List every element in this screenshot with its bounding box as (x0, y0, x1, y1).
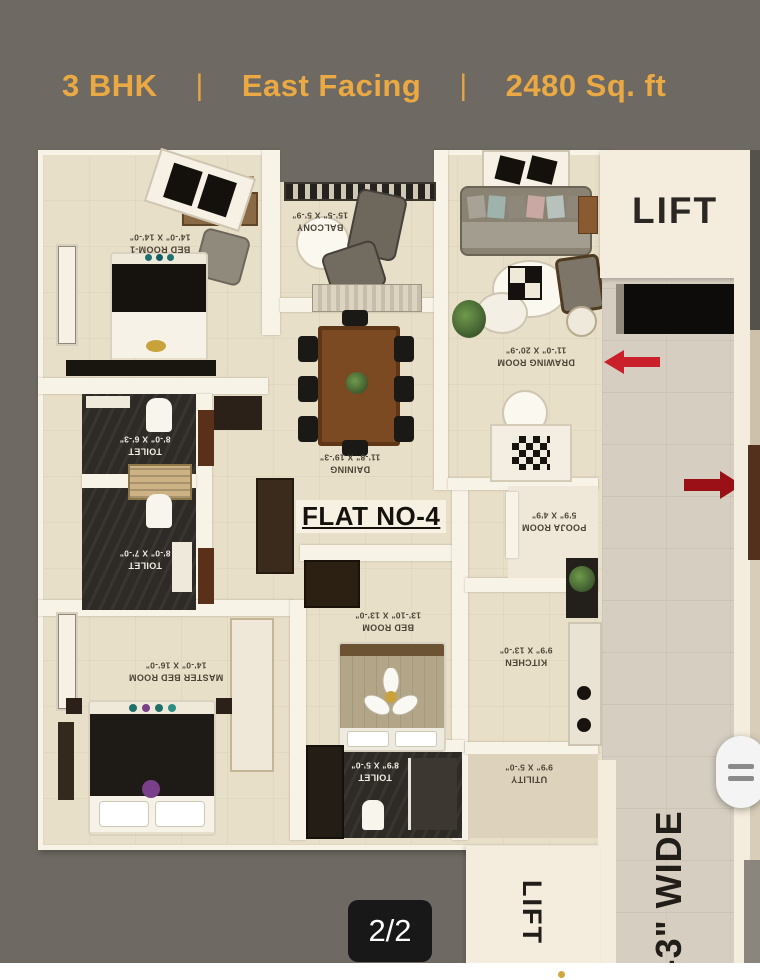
edge-door (748, 445, 760, 560)
room-label-bed1: BED ROOM-1 14'-0" X 14'-0" (100, 232, 220, 255)
plant (452, 300, 486, 338)
window (56, 612, 78, 711)
dresser (58, 722, 74, 800)
dining-chair (298, 336, 318, 362)
arrow-left-icon (604, 348, 660, 376)
tray (508, 266, 542, 300)
foyer-desk (214, 396, 262, 430)
wc (146, 494, 172, 528)
wc (146, 398, 172, 432)
bottom-bar (0, 963, 760, 980)
room-label-daining: DAINING 11'-8" X 19'-3" (290, 452, 410, 475)
corridor-width-label: 6'-3" WIDE (648, 772, 690, 980)
nightstand (66, 698, 82, 714)
wardrobe (256, 478, 294, 574)
lift-label-top: LIFT (632, 190, 718, 232)
wardrobe (304, 560, 360, 608)
wall (434, 150, 448, 490)
flat-number-label: FLAT NO-4 (296, 500, 446, 533)
corridor-wall (598, 760, 616, 965)
dining-chair (394, 336, 414, 362)
edge-fragment (750, 330, 760, 445)
wall (38, 378, 268, 394)
console-table (66, 360, 216, 376)
lift-opening (616, 284, 742, 334)
room-label-balcony: BALCONY 15'-5" X 5'-9" (260, 210, 380, 233)
room-label-utility: UTILITY 9'9" X 5'-0" (469, 762, 589, 785)
floor-plan[interactable]: BED ROOM-1 14'-0" X 14'-0" BALCONY 15'-5… (0, 0, 760, 980)
drag-handle[interactable] (716, 736, 760, 808)
carousel-dot (558, 971, 565, 978)
dining-chair (394, 416, 414, 442)
dining-chair (298, 376, 318, 402)
window (56, 244, 78, 346)
nightstand (216, 698, 232, 714)
planter-box (566, 558, 598, 618)
room-label-pooja: POOJA ROOM 5'9" X 4'9" (494, 510, 614, 533)
edge-fragment (750, 150, 760, 330)
room-label-bedroom: BED ROOM 13'-10" X 13'-0" (328, 610, 448, 633)
rug (312, 284, 422, 312)
side-table (578, 196, 598, 234)
toilet-counter (86, 396, 130, 408)
sideboard (490, 424, 572, 482)
page-indicator: 2/2 (348, 900, 432, 962)
room-label-toilet1: TOILET 8'-0" X 6'-3" (85, 434, 205, 457)
wall (300, 545, 460, 561)
page-indicator-text: 2/2 (368, 913, 411, 949)
edge-fragment (744, 860, 760, 965)
room-label-kitchen: KITCHEN 9'9" X 13'-0" (466, 645, 586, 668)
kitchen-counter (568, 622, 602, 746)
room-label-drawing: DRAWING ROOM 11'-0" X 20'-9" (476, 345, 596, 368)
wall (262, 150, 280, 335)
skylight (482, 150, 570, 190)
bed (110, 252, 208, 362)
wardrobe (230, 618, 274, 772)
door (198, 410, 214, 466)
bed (88, 700, 216, 836)
sofa (460, 186, 592, 256)
edge-fragment (750, 560, 760, 860)
door (198, 548, 214, 604)
ceiling-fan-icon (362, 668, 420, 726)
wc (362, 800, 384, 830)
dining-table (318, 326, 400, 446)
lift-label-bottom: LIFT (516, 880, 547, 945)
stool (566, 306, 597, 337)
dining-chair (342, 310, 368, 326)
balcony-notch (280, 144, 434, 182)
room-label-toilet3: TOILET 8'9" X 5'-0" (315, 760, 435, 783)
wall (290, 600, 306, 840)
dining-chair (394, 376, 414, 402)
room-label-toilet2: TOILET 8'-0" X 7'-0" (85, 548, 205, 571)
dining-chair (298, 416, 318, 442)
room-label-master: MASTER BED ROOM 14'-0" X 16'-0" (106, 660, 246, 683)
screen: 3 BHK | East Facing | 2480 Sq. ft (0, 0, 760, 980)
